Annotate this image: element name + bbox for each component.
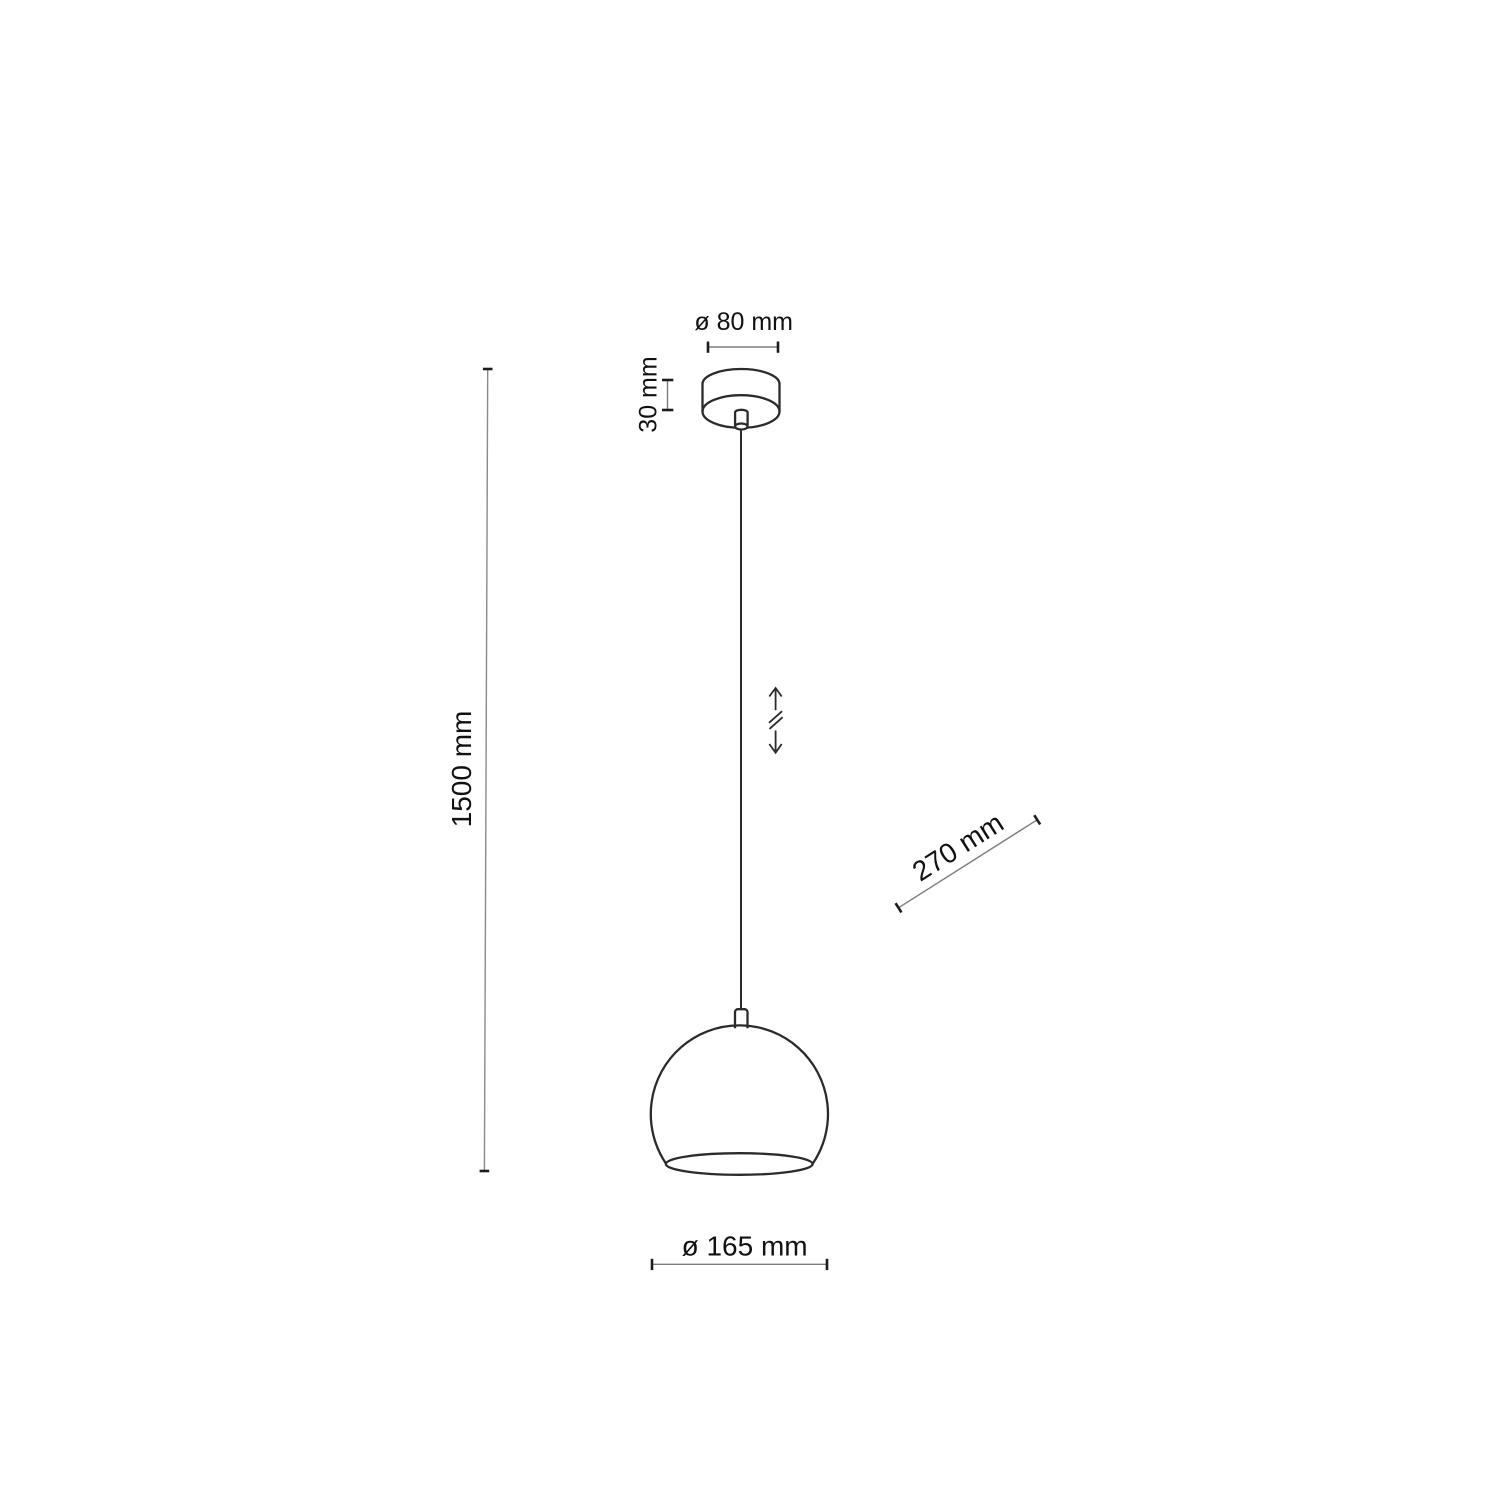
svg-text:ø 165 mm: ø 165 mm xyxy=(682,1231,808,1262)
svg-text:ø 80 mm: ø 80 mm xyxy=(694,308,793,336)
svg-text:30 mm: 30 mm xyxy=(634,356,662,432)
svg-text:1500 mm: 1500 mm xyxy=(446,711,477,828)
